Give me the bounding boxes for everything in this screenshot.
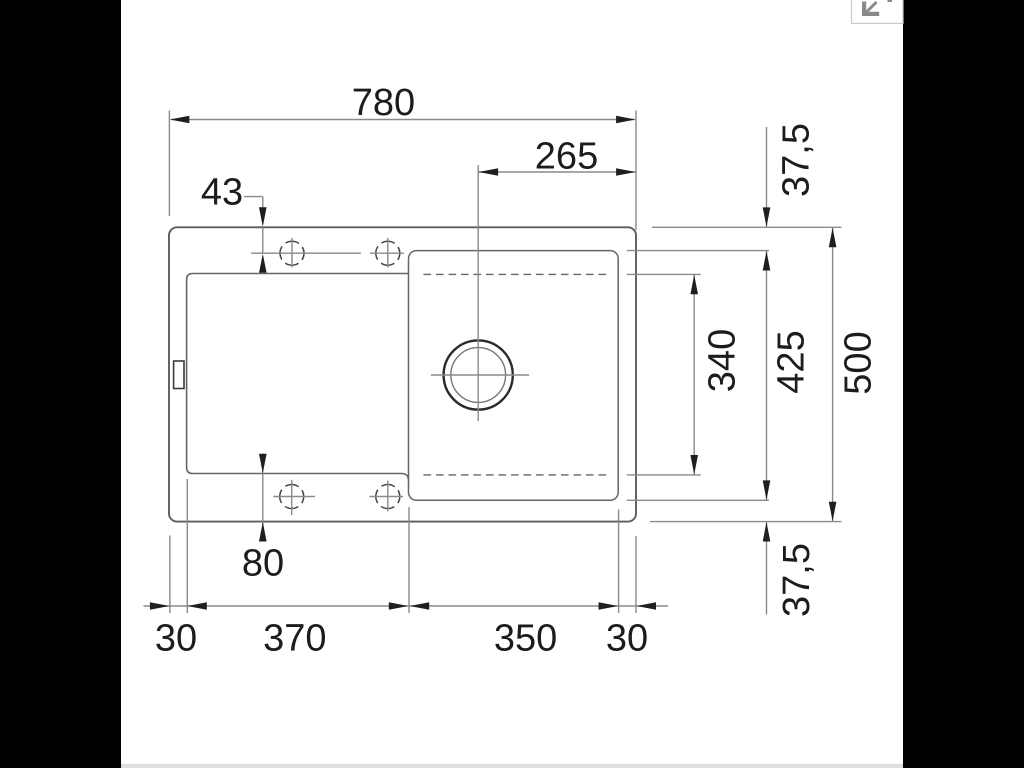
svg-text:80: 80	[242, 543, 284, 585]
svg-text:425: 425	[771, 330, 813, 393]
svg-text:350: 350	[494, 618, 557, 660]
svg-text:340: 340	[702, 329, 744, 392]
svg-text:500: 500	[838, 331, 880, 394]
svg-text:43: 43	[201, 172, 243, 214]
svg-text:30: 30	[155, 618, 197, 660]
svg-text:370: 370	[263, 618, 326, 660]
svg-text:37,5: 37,5	[776, 123, 818, 197]
svg-text:30: 30	[606, 618, 648, 660]
svg-text:265: 265	[535, 136, 598, 178]
svg-text:780: 780	[352, 82, 415, 124]
svg-text:37,5: 37,5	[776, 543, 818, 617]
